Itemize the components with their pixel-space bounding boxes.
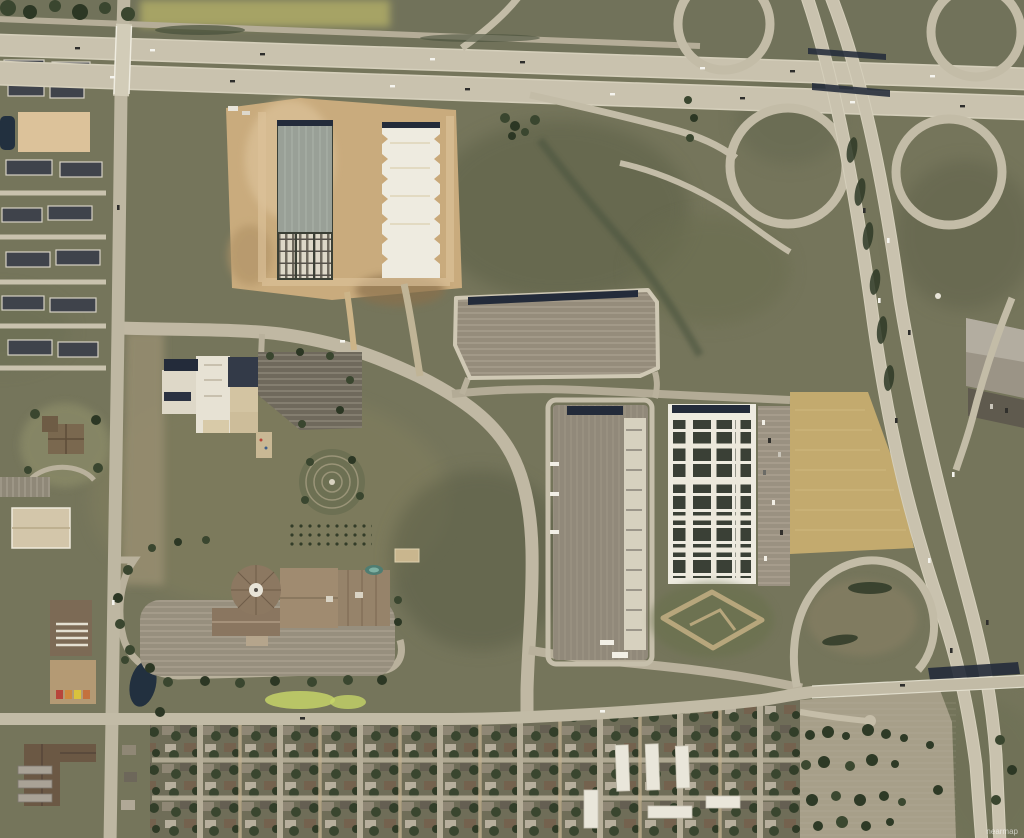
warehouse-a-north-wall	[277, 120, 333, 126]
sport-court	[395, 549, 419, 562]
warehouse-b-north-wall	[382, 122, 440, 128]
warehouse-a-under-construction	[277, 120, 333, 280]
watermark: nearmap	[986, 827, 1018, 836]
warehouse-b-roof	[382, 122, 440, 278]
bright-field-north	[140, 0, 390, 27]
construction-site	[226, 98, 462, 306]
aerial-photo: nearmap	[0, 0, 1024, 838]
garage-rows	[18, 766, 52, 802]
garden-center-building	[50, 600, 92, 656]
playground	[256, 432, 272, 458]
warehouse-b-white	[382, 122, 440, 278]
truck-court	[548, 400, 652, 664]
diamond-berm	[650, 582, 774, 658]
graded-pad	[18, 112, 90, 152]
solar-warehouse	[668, 404, 790, 586]
fallow-strip	[122, 332, 164, 585]
warehouse-a-racking	[279, 234, 331, 278]
detention-pond-nw	[0, 116, 15, 150]
north-parking-lot	[455, 290, 658, 378]
bright-lawn	[265, 691, 335, 709]
dock-apron	[624, 418, 646, 650]
aerial-scene: nearmap	[0, 0, 1024, 838]
warehouse-a-roof	[278, 126, 332, 232]
overpass-bridge	[121, 24, 124, 96]
shrub-rows	[290, 520, 372, 546]
warehouse-entry-canopy	[672, 405, 750, 413]
solar-canopy-court	[567, 406, 623, 415]
